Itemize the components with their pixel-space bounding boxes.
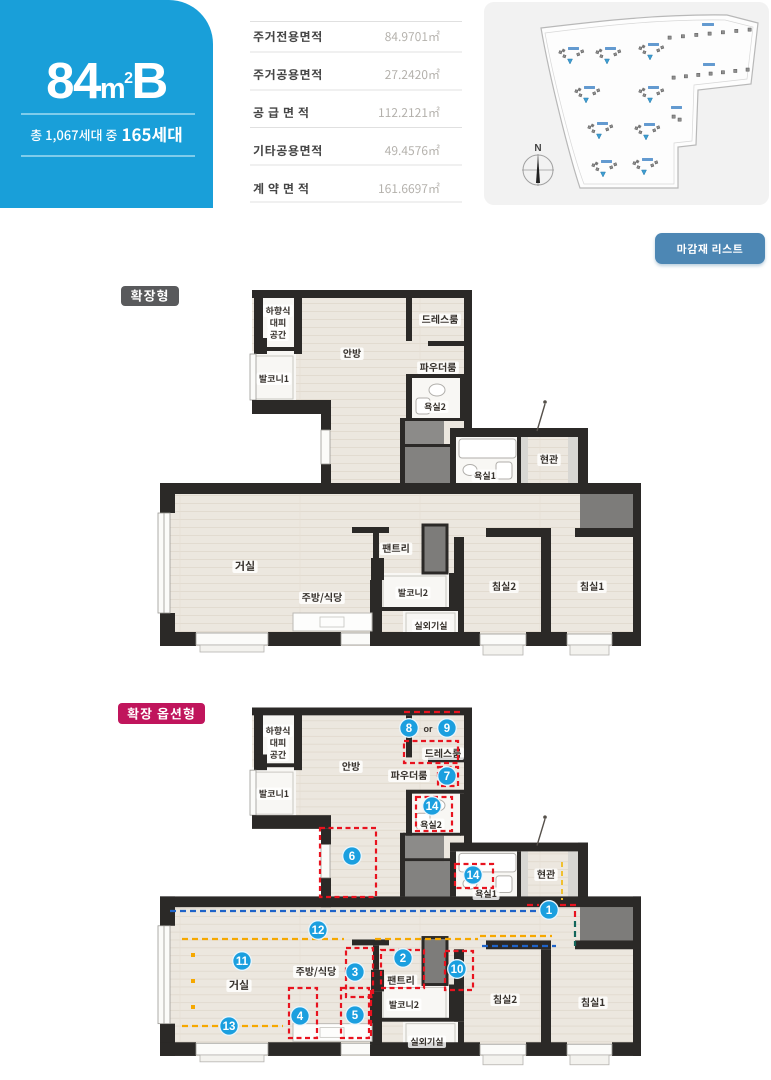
svg-text:12: 12 bbox=[312, 925, 325, 937]
svg-text:4: 4 bbox=[297, 1011, 304, 1023]
svg-text:2: 2 bbox=[400, 953, 406, 965]
svg-text:10: 10 bbox=[451, 964, 464, 976]
svg-text:11: 11 bbox=[236, 956, 249, 968]
svg-text:14: 14 bbox=[426, 801, 439, 813]
svg-text:7: 7 bbox=[444, 771, 450, 783]
svg-text:13: 13 bbox=[223, 1021, 236, 1033]
svg-text:5: 5 bbox=[352, 1010, 359, 1022]
svg-text:8: 8 bbox=[406, 723, 413, 735]
svg-text:6: 6 bbox=[349, 851, 355, 863]
svg-text:N: N bbox=[534, 143, 541, 154]
svg-text:1: 1 bbox=[546, 905, 553, 917]
svg-text:14: 14 bbox=[467, 870, 480, 882]
svg-text:or: or bbox=[424, 724, 433, 734]
svg-text:9: 9 bbox=[444, 723, 450, 735]
svg-text:3: 3 bbox=[352, 967, 358, 979]
